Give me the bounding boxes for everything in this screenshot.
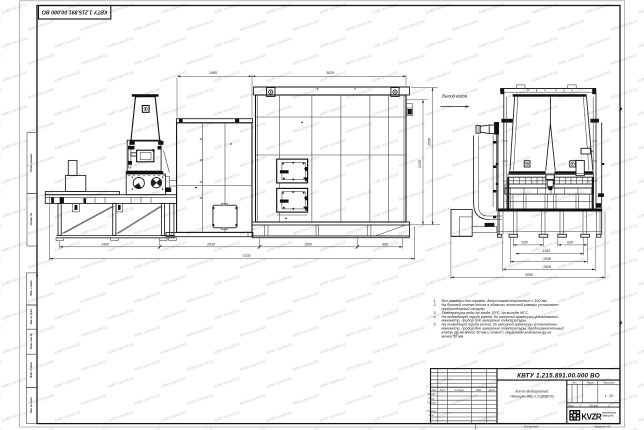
svg-text:Н.контр.: Н.контр. — [427, 411, 437, 413]
svg-text:Дата: Дата — [488, 390, 496, 392]
svg-text:4.: 4. — [434, 315, 437, 319]
svg-text:Масса: Масса — [587, 382, 595, 384]
svg-text:Подп. и дата: Подп. и дата — [30, 362, 33, 379]
svg-text:1950: 1950 — [304, 242, 312, 246]
svg-text:Лит.: Лит. — [571, 382, 578, 384]
svg-text:KVZR: KVZR — [581, 412, 602, 421]
svg-text:Масштаб: Масштаб — [603, 382, 614, 384]
svg-text:630: 630 — [522, 240, 528, 244]
svg-text:1460: 1460 — [101, 242, 109, 246]
svg-text:Котел Водогрейный: Котел Водогрейный — [515, 389, 548, 393]
svg-text:2034: 2034 — [206, 242, 215, 246]
svg-text:Справ. №: Справ. № — [29, 213, 33, 225]
svg-text:7200: 7200 — [242, 254, 250, 258]
svg-text:КВТУ 1.215.891.00.000 ВО: КВТУ 1.215.891.00.000 ВО — [517, 372, 600, 379]
svg-text:1 : 20: 1 : 20 — [605, 394, 614, 398]
svg-text:Утв.: Утв. — [429, 415, 435, 417]
svg-text:2235: 2235 — [418, 160, 422, 169]
svg-text:2550: 2550 — [427, 138, 431, 147]
svg-text:630: 630 — [567, 240, 573, 244]
svg-text:Выход газов: Выход газов — [442, 94, 468, 99]
svg-text:Копировал: Копировал — [524, 425, 539, 429]
svg-text:1362: 1362 — [542, 249, 550, 253]
svg-text:Т.контр.: Т.контр. — [427, 403, 437, 405]
svg-text:Изм.: Изм. — [432, 390, 437, 392]
svg-text:1485: 1485 — [209, 71, 217, 75]
svg-text:3050: 3050 — [525, 273, 533, 277]
svg-text:2.: 2. — [433, 303, 437, 307]
svg-text:Подп. и дата: Подп. и дата — [30, 280, 33, 297]
svg-text:Лист: Лист — [567, 405, 574, 407]
svg-text:менее 50 мм.: менее 50 мм. — [442, 335, 465, 339]
svg-text:Формат А2: Формат А2 — [595, 425, 611, 429]
svg-text:685: 685 — [382, 242, 388, 246]
svg-text:1538: 1538 — [543, 257, 551, 261]
svg-text:Инв. № подл.: Инв. № подл. — [30, 397, 33, 413]
svg-text:Перв. примен.: Перв. примен. — [29, 153, 33, 172]
svg-text:Взам. инв. №: Взам. инв. № — [30, 333, 33, 349]
svg-text:Лист: Лист — [439, 390, 446, 392]
svg-text:Листов: Листов — [588, 405, 598, 407]
svg-text:КВТУ 1.215.891.00.000 ВО: КВТУ 1.215.891.00.000 ВО — [41, 9, 107, 15]
svg-text:Разраб.: Разраб. — [427, 394, 436, 396]
svg-text:5.: 5. — [434, 323, 437, 327]
svg-text:ЗАВОД РФ: ЗАВОД РФ — [602, 415, 613, 418]
svg-text:Пров.: Пров. — [428, 398, 434, 400]
svg-text:1906: 1906 — [543, 265, 551, 269]
svg-text:«Магнум»-КВр-2,5-ДВ(ВПХ): «Магнум»-КВр-2,5-ДВ(ВПХ) — [510, 395, 554, 399]
svg-text:Инв. № дубл.: Инв. № дубл. — [30, 308, 33, 324]
svg-text:КОТЕЛЬНЫЙ: КОТЕЛЬНЫЙ — [602, 411, 616, 414]
svg-text:№ докум.: № докум. — [454, 389, 464, 392]
svg-text:3025: 3025 — [326, 71, 334, 75]
svg-text:Подп.: Подп. — [476, 389, 482, 392]
